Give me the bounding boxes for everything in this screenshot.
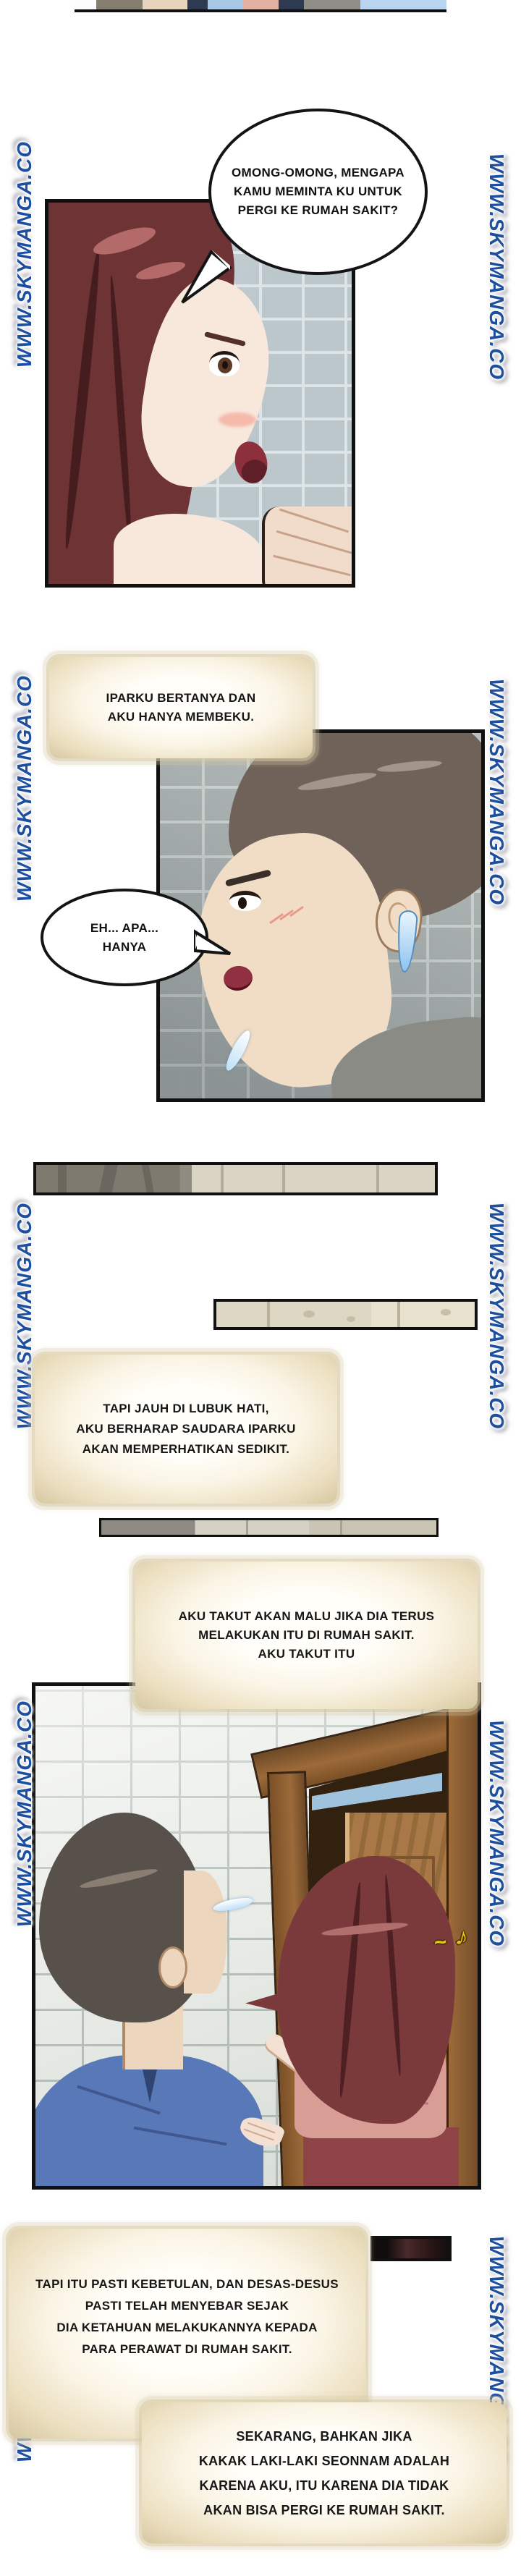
strip-panel-2 [213, 1299, 478, 1330]
narration2-line: AKAN MEMPERHATIKAN SEDIKIT. [82, 1439, 289, 1459]
bubble1-tail [179, 249, 232, 307]
narration5-line: KARENA AKU, ITU KARENA DIA TIDAK [200, 2473, 449, 2498]
woman-blush [219, 412, 256, 427]
man2-ear [158, 1946, 187, 1988]
sliver-segment [96, 0, 143, 9]
narration3-line: AKU TAKUT ITU [258, 1645, 355, 1664]
finger-line [276, 530, 354, 554]
strip1-mortar [282, 1165, 285, 1195]
woman-neck [114, 514, 266, 588]
strip2-speck [441, 1309, 451, 1315]
narration4-line: PASTI TELAH MENYEBAR SEJAK [85, 2295, 289, 2317]
strip2-mortar [397, 1302, 400, 1330]
sliver-segment [304, 0, 360, 9]
panel-hallway-door [32, 1682, 481, 2190]
narration5-line: KAKAK LAKI-LAKI SEONNAM ADALAH [199, 2449, 449, 2473]
woman-mouth-inner [240, 457, 270, 486]
speech-bubble-2: EH... APA... HANYA [41, 889, 208, 986]
narration2-line: AKU BERHARAP SAUDARA IPARKU [76, 1419, 295, 1439]
man2-shirt [32, 2055, 263, 2190]
strip1-streak [142, 1165, 155, 1195]
sweat-drop-icon [395, 910, 418, 973]
narration-box-3: AKU TAKUT AKAN MALU JIKA DIA TERUS MELAK… [135, 1562, 478, 1709]
watermark-left: WWW.SKYMANGA.CO [13, 675, 46, 902]
sliver-segment [243, 0, 279, 9]
narration-box-2: TAPI JAUH DI LUBUK HATI, AKU BERHARAP SA… [35, 1355, 337, 1504]
bubble1-line: PERGI KE RUMAH SAKIT? [238, 201, 399, 220]
panel-man-stunned [156, 729, 485, 1102]
finger-line [273, 555, 350, 577]
strip1-mortar [376, 1165, 379, 1195]
top-panel-sliver [75, 0, 446, 12]
strip2-speck [347, 1316, 355, 1322]
sliver-segment [75, 0, 96, 9]
sliver-segment [208, 0, 243, 9]
bubble1-line: KAMU MEMINTA KU UNTUK [234, 182, 402, 201]
narration-box-1: IPARKU BERTANYA DAN AKU HANYA MEMBEKU. [49, 657, 313, 758]
narration2-line: TAPI JAUH DI LUBUK HATI, [103, 1399, 268, 1419]
man-pupil [238, 897, 247, 909]
strip-panel-3 [99, 1518, 439, 1537]
watermark-right: WWW.SKYMANGA.CO [475, 1720, 508, 1946]
strip3-mortar [340, 1520, 342, 1537]
watermark-left: WWW.SKYMANGA.CO [13, 141, 46, 368]
man-eye [229, 891, 261, 911]
sliver-segment [279, 0, 304, 9]
narration4-line: TAPI ITU PASTI KEBETULAN, DAN DESAS-DESU… [35, 2274, 339, 2295]
narration1-line: IPARKU BERTANYA DAN [106, 689, 256, 708]
narration5-line: SEKARANG, BAHKAN JIKA [236, 2424, 412, 2449]
sliver-segment [143, 0, 187, 9]
strip-panel-1 [33, 1162, 438, 1195]
watermark-right: WWW.SKYMANGA.CO [475, 153, 508, 380]
strip1-streak [58, 1165, 67, 1195]
woman-pupil [222, 361, 228, 369]
sliver-segment [360, 0, 446, 9]
sliver-segment [187, 0, 208, 9]
bubble2-line: HANYA [103, 938, 146, 957]
strip1-mortar [221, 1165, 224, 1195]
watermark-right: WWW.SKYMANGA.CO [475, 679, 508, 905]
strip1-streak [98, 1165, 118, 1195]
narration3-line: AKU TAKUT AKAN MALU JIKA DIA TERUS [179, 1607, 435, 1626]
narration3-line: MELAKUKAN ITU DI RUMAH SAKIT. [198, 1626, 415, 1645]
bubble2-line: EH... APA... [90, 919, 158, 938]
watermark-left: WWW.SKYMANGA.CO [13, 1700, 46, 1927]
bubble2-tail [192, 928, 233, 959]
strip2-mortar [267, 1302, 270, 1330]
strip2-speck [303, 1310, 315, 1318]
narration5-line: AKAN BISA PERGI KE RUMAH SAKIT. [203, 2498, 445, 2522]
bubble1-line: OMONG-OMONG, MENGAPA [232, 164, 404, 182]
watermark-right: WWW.SKYMANGA.CO [475, 1203, 508, 1429]
woman-hand [262, 507, 355, 588]
narration-box-5: SEKARANG, BAHKAN JIKA KAKAK LAKI-LAKI SE… [142, 2402, 507, 2543]
man2-face-edge [184, 1870, 227, 1994]
strip3-mortar [246, 1520, 248, 1537]
comic-page: ♪ ~ OMONG-OMONG, MENGAPA KAMU MEMINTA KU… [0, 0, 521, 2576]
fragment-panel-dark [370, 2236, 452, 2261]
narration4-line: DIA KETAHUAN MELAKUKANNYA KEPADA [56, 2317, 317, 2339]
woman-eye [209, 351, 240, 376]
finger-line [279, 509, 349, 533]
narration1-line: AKU HANYA MEMBEKU. [108, 708, 255, 726]
narration4-line: PARA PERAWAT DI RUMAH SAKIT. [82, 2339, 292, 2360]
shirt-fold [134, 2127, 227, 2146]
speech-bubble-1: OMONG-OMONG, MENGAPA KAMU MEMINTA KU UNT… [208, 109, 428, 275]
